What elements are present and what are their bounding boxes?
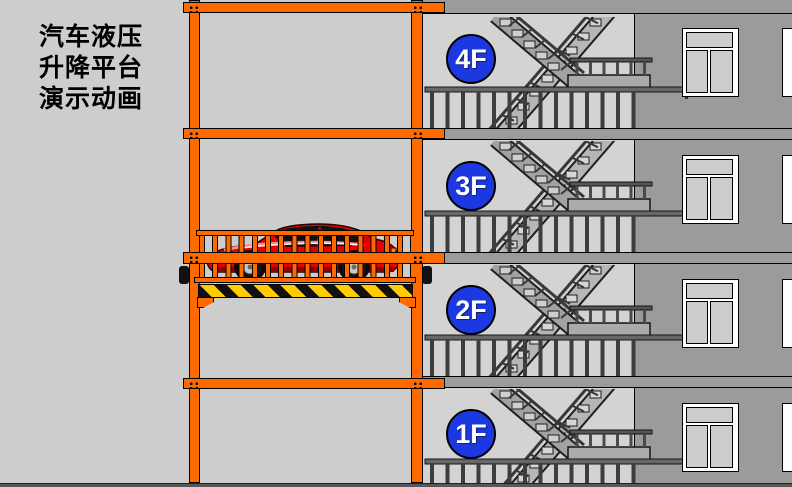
bolt-plate xyxy=(412,5,423,13)
floor-badge-2f: 2F xyxy=(446,285,496,335)
floor-4f: 4F xyxy=(420,14,792,128)
floor-badge-1f: 1F xyxy=(446,409,496,459)
window-pane xyxy=(786,32,792,90)
window xyxy=(682,155,739,224)
floor-slab xyxy=(420,128,792,140)
ground-strip xyxy=(0,483,792,487)
guide-roller-right xyxy=(422,266,432,284)
bolt-plate xyxy=(188,381,199,389)
window xyxy=(682,403,739,472)
floor-2f: 2F xyxy=(420,265,792,376)
window-pane xyxy=(710,50,733,93)
window-partial xyxy=(782,155,792,224)
window-pane xyxy=(686,177,708,220)
animation-stage: 汽车液压 升降平台 演示动画 4F 3F 2F 1F xyxy=(0,0,792,487)
window-pane xyxy=(786,283,792,341)
platform-foot-right xyxy=(399,297,416,308)
window xyxy=(682,279,739,348)
bolt-plate xyxy=(412,255,423,263)
cage-bottom-rail xyxy=(194,277,416,283)
platform-foot-left xyxy=(197,297,214,308)
floor-1f: 1F xyxy=(420,389,792,483)
floor-3f: 3F xyxy=(420,141,792,252)
window-partial xyxy=(782,28,792,97)
window-pane xyxy=(686,425,708,468)
window-pane xyxy=(710,301,733,344)
window-partial xyxy=(782,403,792,472)
floor-badge-3f: 3F xyxy=(446,161,496,211)
window-pane xyxy=(786,407,792,465)
bolt-plate xyxy=(188,255,199,263)
window-partial xyxy=(782,279,792,348)
lift-beam-level-3 xyxy=(183,128,445,139)
lift-beam-level-1 xyxy=(183,378,445,389)
bolt-plate xyxy=(188,131,199,139)
bolt-plate xyxy=(412,131,423,139)
window-pane xyxy=(686,407,733,423)
window-pane xyxy=(686,283,733,299)
lift-beam-level-2 xyxy=(183,252,445,264)
title-line-1: 汽车液压 xyxy=(22,22,160,53)
window-pane xyxy=(686,32,733,48)
window-pane xyxy=(686,159,733,175)
window-pane xyxy=(710,425,733,468)
roof-slab xyxy=(420,0,792,14)
floor-slab xyxy=(420,252,792,264)
title-line-3: 演示动画 xyxy=(22,84,160,115)
page-title: 汽车液压 升降平台 演示动画 xyxy=(22,22,160,115)
window-pane xyxy=(710,177,733,220)
floor-badge-4f: 4F xyxy=(446,34,496,84)
lift-column-right xyxy=(411,0,423,483)
bolt-plate xyxy=(188,5,199,13)
floor-slab xyxy=(420,376,792,388)
hazard-stripe-panel xyxy=(198,284,413,298)
title-line-2: 升降平台 xyxy=(22,53,160,84)
window-pane xyxy=(686,301,708,344)
lift-beam-top xyxy=(183,2,445,13)
window-pane xyxy=(786,159,792,217)
window-pane xyxy=(686,50,708,93)
guide-roller-left xyxy=(179,266,189,284)
window xyxy=(682,28,739,97)
bolt-plate xyxy=(412,381,423,389)
